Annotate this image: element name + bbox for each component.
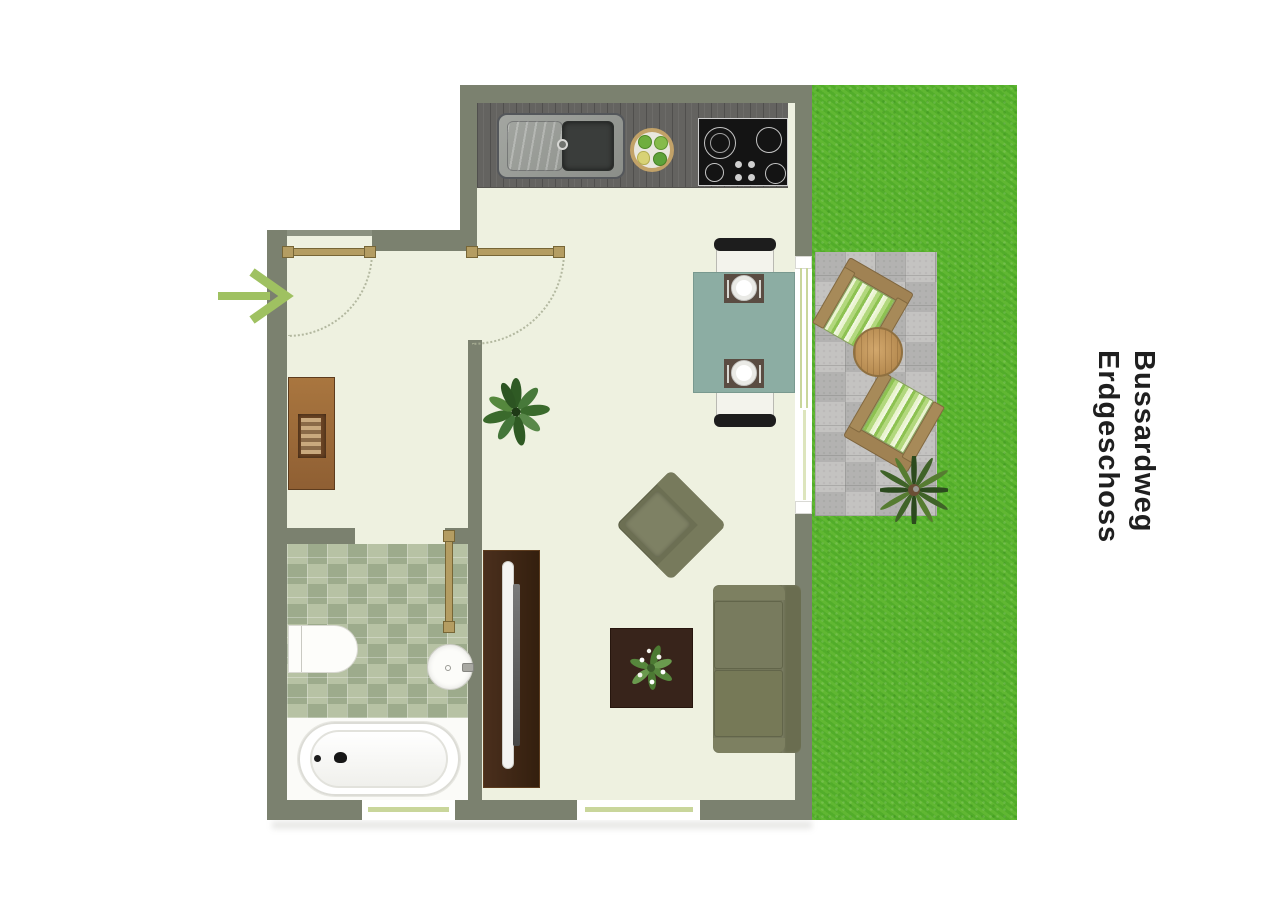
palm-plant-icon — [880, 456, 948, 524]
terrace-door-glass-fixed — [803, 410, 806, 500]
knob-icon — [735, 174, 742, 181]
bathroom-door-leaf — [445, 540, 453, 625]
toilet-tank-line — [301, 626, 302, 672]
floor-bath-doorway — [355, 528, 445, 544]
door-hinge — [364, 246, 376, 258]
terrace-door-glass — [800, 268, 808, 408]
burner-ring — [765, 163, 786, 184]
wall-kitchen-left — [460, 85, 477, 251]
basin-drain-icon — [445, 665, 451, 671]
tub-faucet-icon — [334, 752, 347, 763]
interior-door-leaf — [472, 248, 565, 256]
bathtub-inner — [310, 730, 448, 788]
plan-title: Bussardweg Erdgeschoss — [1090, 350, 1162, 543]
bathtub — [298, 722, 460, 796]
sofa-cushion — [714, 670, 783, 737]
apple-icon — [654, 136, 668, 150]
wall-bottom-right — [700, 800, 812, 820]
sink-faucet-icon — [557, 139, 568, 150]
burner-ring — [710, 133, 730, 153]
sofa-backrest — [782, 585, 801, 753]
title-floor: Erdgeschoss — [1090, 350, 1126, 543]
wardrobe — [288, 377, 335, 490]
wall-right-upper — [795, 85, 812, 259]
fruit-bowl — [630, 128, 674, 172]
kitchen-sink — [497, 113, 625, 179]
wardrobe-shelf-recess — [298, 414, 326, 458]
wall-divider — [468, 340, 482, 802]
wall-bottom-left — [267, 800, 362, 820]
plate — [731, 360, 757, 386]
pear-icon — [637, 151, 650, 165]
wall-hall-top — [372, 230, 477, 251]
folded-clothes — [301, 418, 321, 454]
sofa-cushion — [714, 601, 783, 669]
plate — [731, 275, 757, 301]
title-street: Bussardweg — [1126, 350, 1162, 543]
door-hinge — [282, 246, 294, 258]
burner-ring — [705, 163, 724, 182]
floor-plan: Bussardweg Erdgeschoss — [0, 0, 1280, 906]
tub-drain-icon — [314, 755, 321, 762]
potted-plant-icon — [481, 377, 551, 447]
burner-ring — [756, 127, 782, 153]
sofa — [713, 585, 801, 753]
window-living-glass — [585, 807, 693, 812]
terrace-round-table — [853, 327, 903, 377]
apple-icon — [638, 135, 652, 149]
flower-arrangement-icon — [625, 642, 677, 694]
basin-faucet-icon — [462, 663, 474, 672]
cooktop — [698, 118, 788, 186]
window-bath-glass — [368, 807, 449, 812]
wall-top — [460, 85, 812, 103]
tv-screen — [513, 584, 520, 746]
washbasin — [427, 644, 473, 690]
building-shadow — [272, 821, 812, 829]
apple-icon — [653, 152, 667, 166]
sink-basin — [562, 121, 614, 171]
terrace-door-frame-bottom — [795, 501, 812, 514]
entrance-door-leaf — [288, 248, 368, 256]
entrance-lintel — [287, 230, 372, 236]
door-hinge — [443, 530, 455, 542]
sofa-armrest — [713, 738, 785, 753]
wall-bath-top-left — [287, 528, 355, 544]
sink-drainboard — [507, 121, 563, 171]
knob-icon — [748, 161, 755, 168]
knob-icon — [748, 174, 755, 181]
sofa-armrest — [713, 585, 785, 600]
door-hinge — [466, 246, 478, 258]
knob-icon — [735, 161, 742, 168]
wall-bottom-middle — [455, 800, 583, 820]
door-hinge — [443, 621, 455, 633]
entrance-arrow-icon — [210, 266, 300, 326]
door-hinge — [553, 246, 565, 258]
toilet — [288, 625, 358, 673]
